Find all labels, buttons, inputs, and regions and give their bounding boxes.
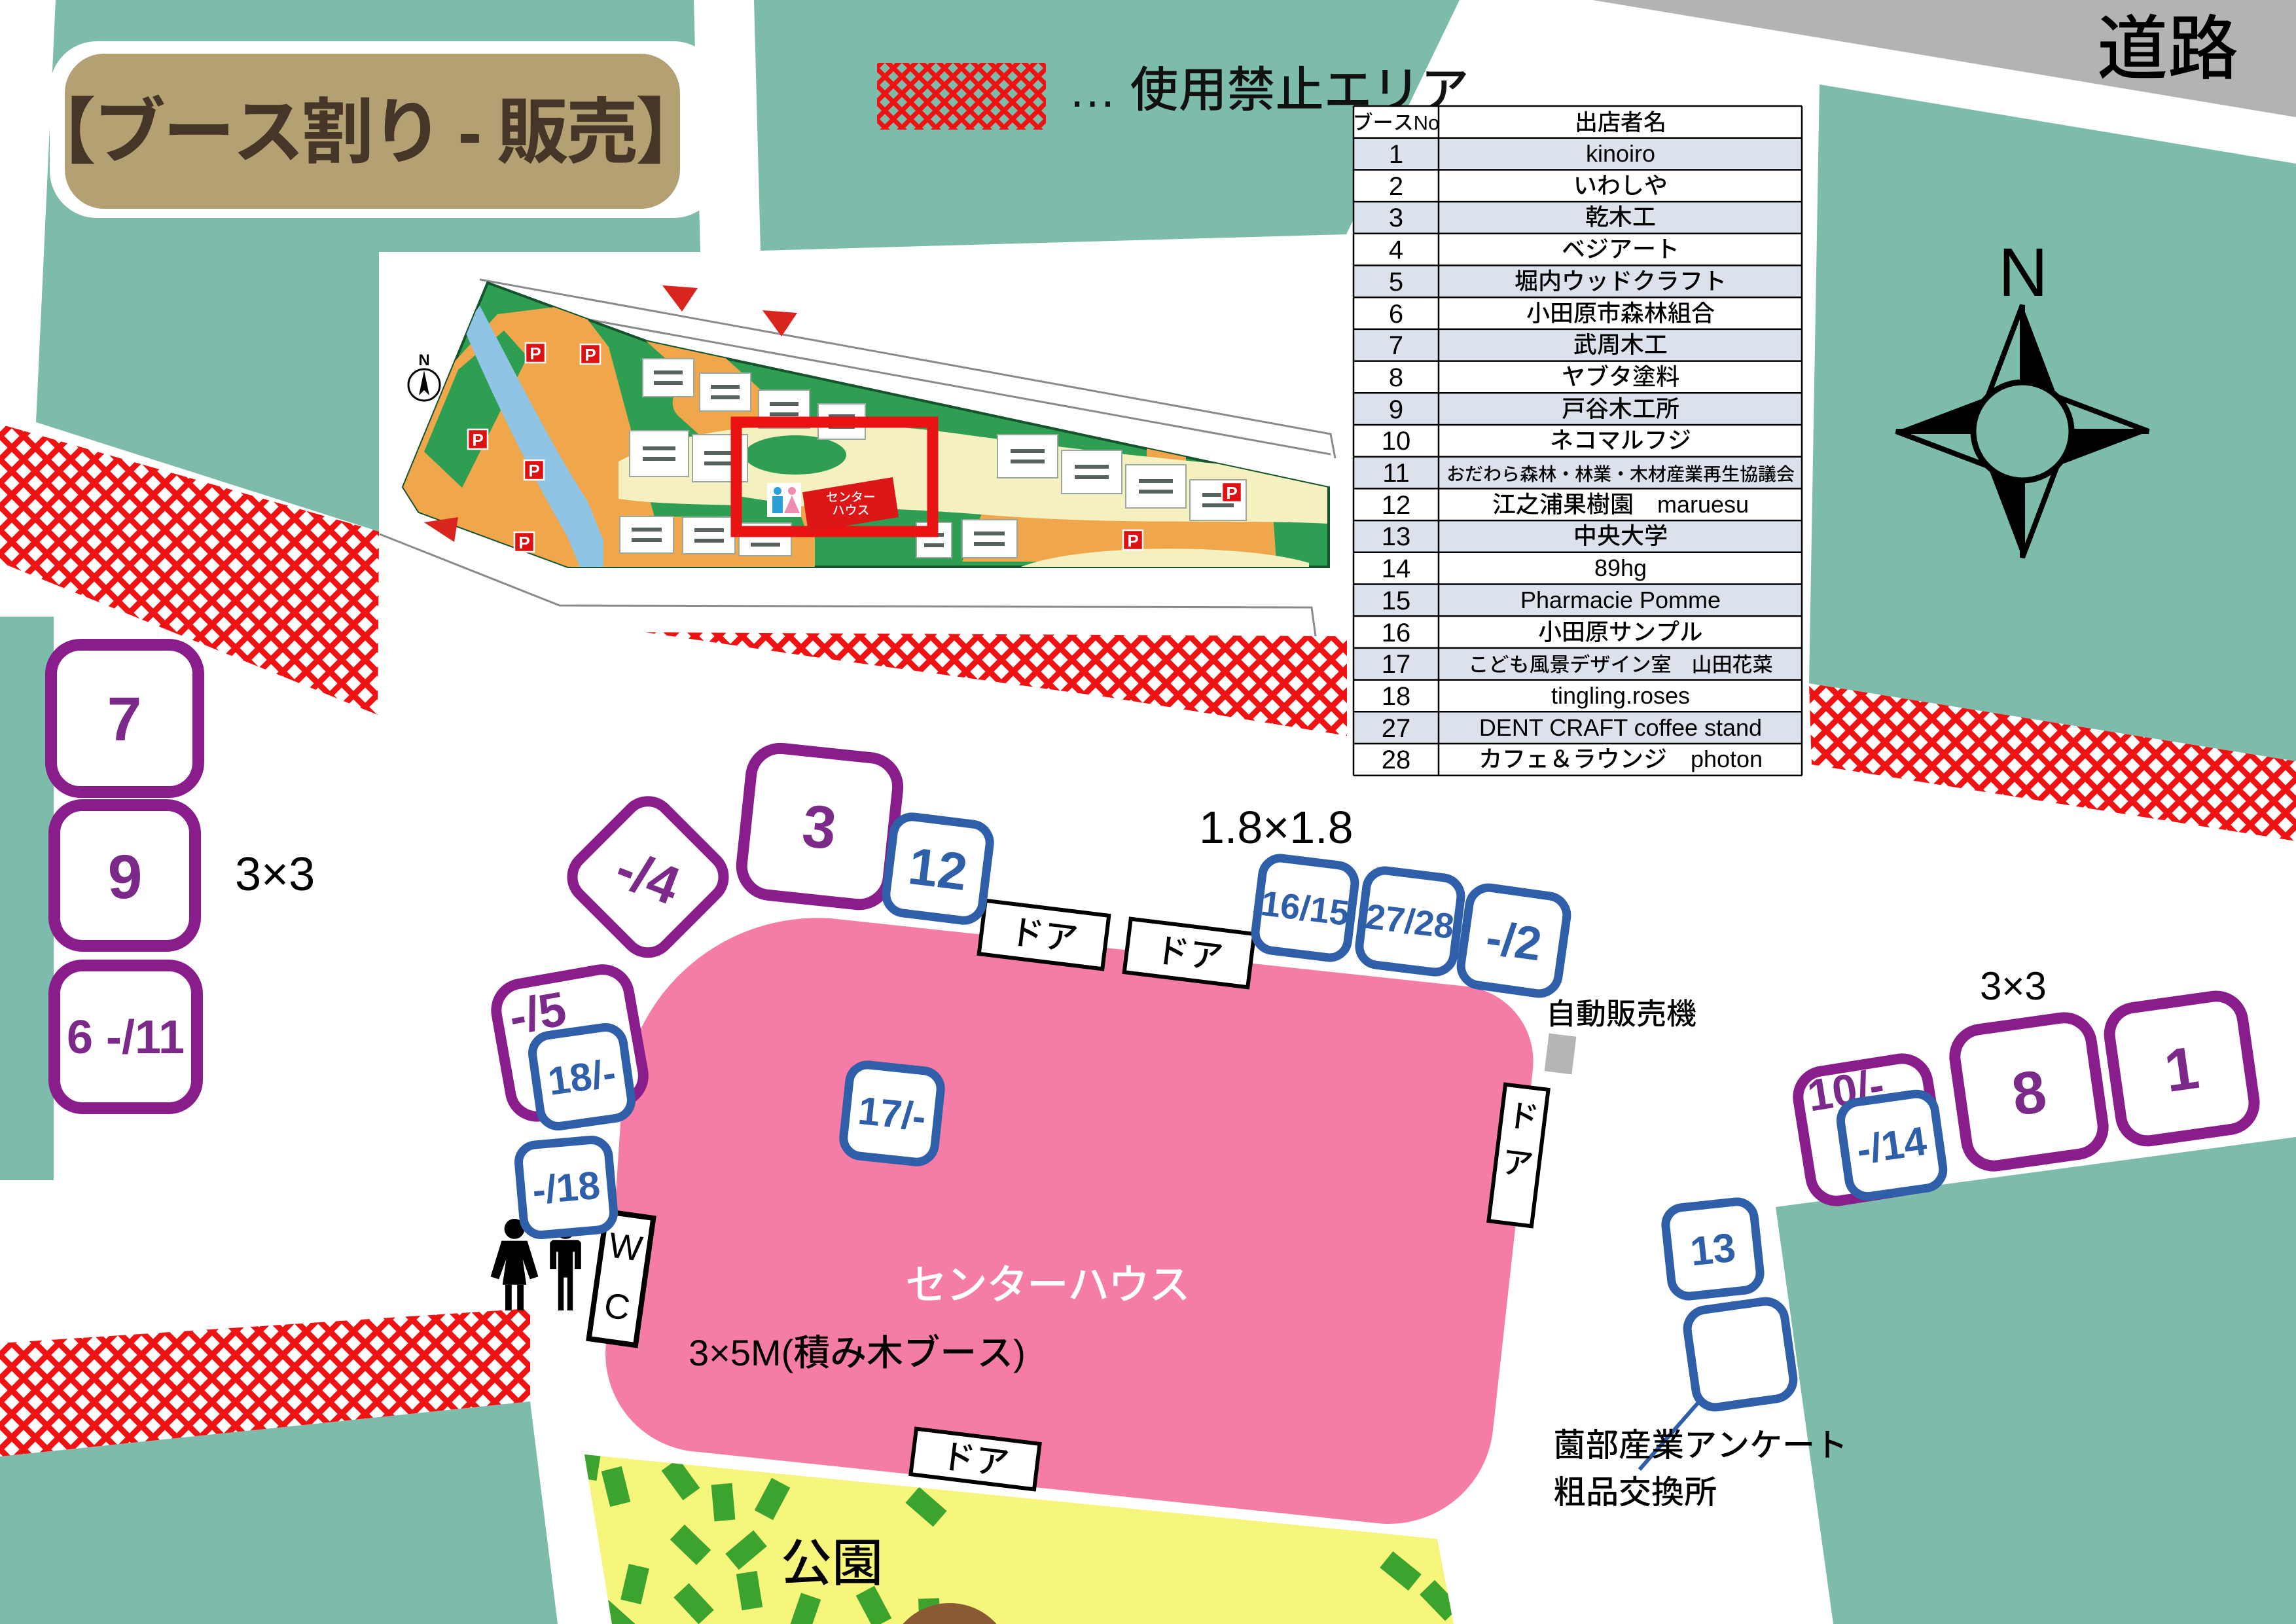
svg-text:【ブース割り - 販売】: 【ブース割り - 販売】	[24, 92, 705, 173]
svg-text:28: 28	[1382, 746, 1411, 774]
svg-text:6 -/11: 6 -/11	[67, 1011, 185, 1064]
svg-text:薗部産業アンケート: 薗部産業アンケート	[1553, 1427, 1848, 1464]
svg-text:小田原市森林組合: 小田原市森林組合	[1526, 300, 1715, 327]
svg-text:出店者名: 出店者名	[1575, 110, 1666, 135]
svg-text:12: 12	[1382, 491, 1411, 520]
svg-text:18: 18	[1382, 682, 1411, 711]
svg-text:10: 10	[1382, 427, 1411, 456]
svg-text:tingling.roses: tingling.roses	[1551, 682, 1690, 709]
svg-text:13: 13	[1382, 522, 1411, 551]
svg-text:P: P	[472, 430, 483, 450]
svg-text:7: 7	[1389, 331, 1403, 360]
svg-text:武周木工: 武周木工	[1573, 331, 1668, 358]
svg-text:16: 16	[1382, 619, 1411, 647]
svg-text:1: 1	[1389, 140, 1403, 169]
svg-text:粗品交換所: 粗品交換所	[1553, 1474, 1717, 1511]
svg-text:18/-: 18/-	[545, 1051, 619, 1104]
svg-text:小田原サンプル: 小田原サンプル	[1538, 619, 1703, 645]
svg-text:自動販売機: 自動販売機	[1546, 997, 1696, 1031]
svg-text:27: 27	[1382, 714, 1411, 743]
svg-text:P: P	[584, 345, 596, 365]
svg-text:Pharmacie Pomme: Pharmacie Pomme	[1520, 586, 1721, 613]
svg-text:江之浦果樹園 maruesu: 江之浦果樹園 maruesu	[1492, 491, 1749, 518]
svg-text:P: P	[528, 461, 539, 480]
svg-text:12: 12	[905, 837, 970, 901]
svg-text:センターハウス: センターハウス	[905, 1261, 1189, 1308]
svg-text:3×3: 3×3	[235, 848, 315, 901]
svg-text:ネコマルフジ: ネコマルフジ	[1550, 427, 1691, 454]
svg-text:2: 2	[1389, 172, 1403, 201]
svg-text:17: 17	[1382, 650, 1411, 679]
svg-text:C: C	[601, 1286, 632, 1328]
svg-text:15: 15	[1382, 586, 1411, 615]
svg-text:9: 9	[1389, 395, 1403, 424]
svg-text:P: P	[529, 344, 541, 363]
svg-text:1.8×1.8: 1.8×1.8	[1199, 802, 1354, 853]
svg-text:3×3: 3×3	[1980, 964, 2047, 1008]
svg-text:ハウス: ハウス	[832, 504, 869, 518]
svg-text:8: 8	[1389, 363, 1403, 392]
svg-text:ア: ア	[1499, 1145, 1535, 1183]
svg-text:カフェ＆ラウンジ photon: カフェ＆ラウンジ photon	[1479, 746, 1763, 772]
svg-text:堀内ウッドクラフト: 堀内ウッドクラフト	[1515, 268, 1727, 295]
svg-text:9: 9	[108, 842, 143, 912]
svg-text:N: N	[1998, 234, 2048, 311]
svg-text:3×5M(積み木ブース): 3×5M(積み木ブース)	[689, 1332, 1026, 1373]
svg-text:6: 6	[1389, 300, 1403, 329]
svg-text:公園: 公園	[781, 1534, 883, 1592]
svg-text:W: W	[606, 1225, 645, 1269]
svg-text:5: 5	[1389, 268, 1403, 297]
svg-text:こども風景デザイン室 山田花菜: こども風景デザイン室 山田花菜	[1469, 653, 1773, 676]
svg-text:3: 3	[1389, 204, 1403, 232]
svg-text:戸谷木工所: 戸谷木工所	[1562, 395, 1679, 422]
svg-text:kinoiro: kinoiro	[1586, 140, 1655, 167]
svg-text:7: 7	[107, 685, 142, 754]
svg-text:ベジアート: ベジアート	[1562, 236, 1679, 262]
svg-text:17/-: 17/-	[856, 1089, 928, 1139]
svg-text:-/2: -/2	[1483, 912, 1545, 971]
svg-text:P: P	[1226, 483, 1237, 503]
svg-text:ド: ド	[1505, 1098, 1541, 1136]
svg-text:P: P	[1127, 531, 1138, 550]
svg-text:3: 3	[799, 793, 840, 863]
svg-text:道路: 道路	[2097, 9, 2238, 88]
svg-text:ブースNo: ブースNo	[1353, 111, 1440, 134]
svg-text:13: 13	[1688, 1225, 1738, 1275]
svg-text:P: P	[518, 533, 529, 552]
svg-text:いわしや: いわしや	[1573, 172, 1668, 199]
svg-text:-/18: -/18	[531, 1163, 602, 1213]
svg-text:ヤブタ塗料: ヤブタ塗料	[1562, 363, 1679, 390]
svg-text:中央大学: 中央大学	[1573, 522, 1668, 549]
svg-text:乾木工: 乾木工	[1585, 204, 1656, 230]
svg-text:DENT CRAFT coffee stand: DENT CRAFT coffee stand	[1479, 714, 1762, 741]
svg-text:89hg: 89hg	[1594, 554, 1647, 581]
svg-text:14: 14	[1382, 554, 1411, 583]
svg-text:11: 11	[1382, 459, 1410, 488]
svg-text:おだわら森林・林業・木材産業再生協議会: おだわら森林・林業・木材産業再生協議会	[1446, 464, 1795, 484]
svg-text:センター: センター	[826, 491, 876, 505]
svg-text:4: 4	[1389, 236, 1403, 264]
svg-text:N: N	[418, 352, 429, 369]
